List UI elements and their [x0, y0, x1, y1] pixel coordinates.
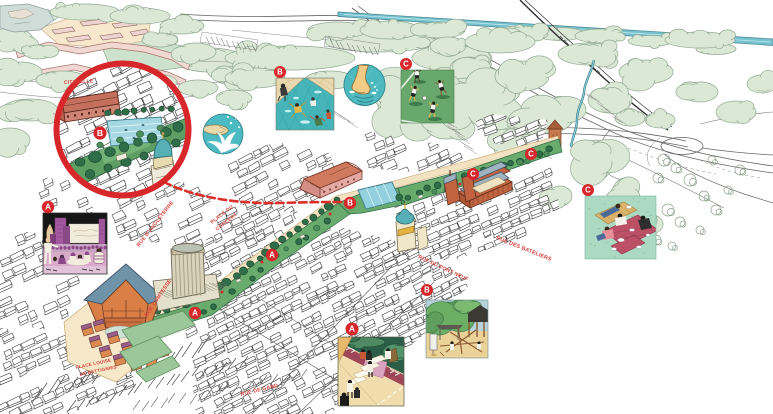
svg-text:C: C [585, 186, 591, 195]
svg-text:A: A [269, 251, 275, 260]
svg-text:A: A [349, 324, 355, 334]
svg-text:C: C [528, 150, 534, 159]
svg-text:B: B [97, 128, 103, 138]
svg-text:B: B [424, 286, 430, 295]
svg-text:B: B [277, 68, 283, 77]
svg-text:A: A [192, 309, 198, 318]
svg-text:A: A [45, 203, 51, 212]
svg-text:C: C [403, 60, 409, 69]
svg-text:B: B [347, 199, 353, 208]
svg-text:C: C [470, 170, 476, 179]
